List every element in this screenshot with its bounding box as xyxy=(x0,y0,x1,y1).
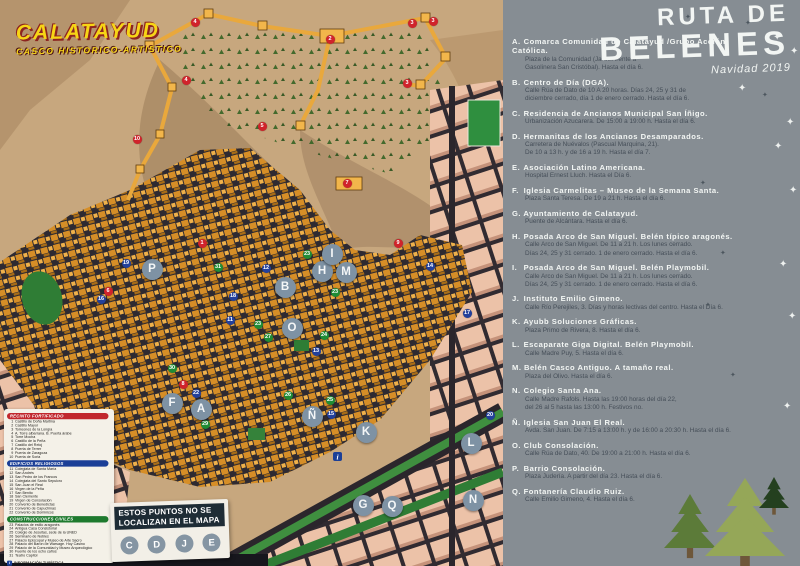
poi-entry: Q. Fontanería Claudio Ruiz.Calle Emilio … xyxy=(512,487,764,505)
map-number-marker: 5 xyxy=(258,122,267,131)
star-icon: ✦ xyxy=(738,84,746,94)
poi-entry-title: L. Escaparate Giga Digital. Belén Playmo… xyxy=(512,340,764,349)
poi-entry-letter: I. xyxy=(512,263,521,272)
poi-entry-letter: D. xyxy=(512,132,521,141)
star-icon: ✦ xyxy=(705,302,711,309)
route-title-line2: BELENES xyxy=(599,26,791,66)
map-letter-marker: G xyxy=(353,495,374,516)
poi-entry-letter: O. xyxy=(512,441,521,450)
star-icon: ✦ xyxy=(786,118,794,128)
map-number-marker: 7 xyxy=(343,179,352,188)
legend-footer: iINFORMACIÓN TURÍSTICA xyxy=(7,561,108,566)
map-number-marker: 30 xyxy=(168,364,177,373)
map-number-marker: 3 xyxy=(408,19,417,28)
map-number-marker: 3 xyxy=(429,17,438,26)
not-localized-text: ESTOS PUNTOS NO SE LOCALIZAN EN EL MAPA xyxy=(114,503,225,530)
poi-entry-letter: C. xyxy=(512,109,521,118)
poi-entry-title: H. Posada Arco de San Miguel. Belén típi… xyxy=(512,232,764,241)
poi-entry-letter: J. xyxy=(512,294,521,303)
poi-entry-detail: Días 24, 25 y 31 cerrado. 1 de enero cer… xyxy=(525,250,764,258)
map-number-marker: 20 xyxy=(486,411,495,420)
map-letter-marker: M xyxy=(336,262,357,283)
poi-entry: E. Asociación Latino Americana.Hospital … xyxy=(512,163,764,181)
star-icon: ✦ xyxy=(779,260,787,270)
map-number-marker: 25 xyxy=(326,396,335,405)
star-icon: ✦ xyxy=(762,92,768,99)
poi-entry-title: C. Residencia de Ancianos Municipal San … xyxy=(512,109,764,118)
poi-entry-detail: De 10 a 13 h. y de 16 a 19 h. Hasta el d… xyxy=(525,149,764,157)
legend-item: 10Puerta de Soria xyxy=(7,456,108,460)
legend-item-label: Convento de Dominicos xyxy=(15,511,54,515)
map-letter-marker: Ñ xyxy=(302,406,323,427)
map-number-marker: 15 xyxy=(327,410,336,419)
not-localized-letter: E xyxy=(202,533,221,552)
poi-entry-detail: Urbanización Azucarera. De 15:00 a 19:00… xyxy=(525,118,764,126)
poi-entry-letter: H. xyxy=(512,232,521,241)
map-number-marker: 4 xyxy=(182,76,191,85)
map-number-marker: 23 xyxy=(303,250,312,259)
poi-entry-detail: Puente de Alcántara. Hasta el día 6. xyxy=(525,218,764,226)
poi-entry-letter: K. xyxy=(512,317,521,326)
map-letter-marker: I xyxy=(322,244,343,265)
poi-entry: P. Barrio Consolación.Plaza Judería. A p… xyxy=(512,464,764,482)
sports-field xyxy=(468,100,500,146)
map-number-marker: 23 xyxy=(254,320,263,329)
poi-entry-title: P. Barrio Consolación. xyxy=(512,464,764,473)
legend-item: 22Convento de Dominicos xyxy=(7,511,108,515)
star-icon: ✦ xyxy=(783,402,791,412)
map-number-marker: 14 xyxy=(426,262,435,271)
poi-entry-detail: Calle Río Perejiles, 3. Días y horas lec… xyxy=(525,304,764,312)
poi-entry: F. Iglesia Carmelitas – Museo de la Sema… xyxy=(512,186,764,204)
map-letter-marker: F xyxy=(162,393,183,414)
poi-entry: M. Belén Casco Antiguo. A tamaño real.Pl… xyxy=(512,363,764,381)
not-localized-letters: CDJE xyxy=(115,533,226,555)
poi-entry: L. Escaparate Giga Digital. Belén Playmo… xyxy=(512,340,764,358)
poi-entry-detail: Carretera de Nuévalos (Pascual Marquina,… xyxy=(525,141,764,149)
poi-entry-title: M. Belén Casco Antiguo. A tamaño real. xyxy=(512,363,764,372)
poi-entry-detail: Calle Arco de San Miguel. De 11 a 21 h. … xyxy=(525,241,764,249)
poi-entry-title: I. Posada Arco de San Miguel. Belén Play… xyxy=(512,263,764,272)
map-number-marker: 9 xyxy=(394,239,403,248)
info-icon: i xyxy=(333,452,342,462)
map-number-marker: 27 xyxy=(264,333,273,342)
poi-entry-detail: Avda. San Juan. De 7:15 a 13:00 h. y de … xyxy=(525,427,764,435)
poi-entry-detail: Hospital Ernest Lluch. Hasta el Día 6. xyxy=(525,172,764,180)
legend-item-label: Puerta de Soria xyxy=(15,456,40,460)
map-letter-marker: L xyxy=(461,433,482,454)
map-number-marker: 18 xyxy=(229,292,238,301)
poi-entry: B. Centro de Día (DGA).Calle Rúa de Dato… xyxy=(512,78,764,104)
poi-entry-detail: Plaza Primo de Rivera, 8. Hasta el día 6… xyxy=(525,327,764,335)
map-number-marker: 22 xyxy=(192,389,201,398)
map-letter-marker: O xyxy=(282,318,303,339)
poi-entry: K. Ayubb Soluciones Gráficas.Plaza Primo… xyxy=(512,317,764,335)
info-icon: i xyxy=(7,561,12,566)
map-number-marker: 12 xyxy=(262,264,271,273)
map-number-marker: 8 xyxy=(179,380,188,389)
legend-section-title: EDIFICIOS RELIGIOSOS xyxy=(7,461,108,467)
poi-entry: I. Posada Arco de San Miguel. Belén Play… xyxy=(512,263,764,289)
poi-entry: J. Instituto Emilio Gimeno.Calle Río Per… xyxy=(512,294,764,312)
route-title-block: RUTA DE BELENES Navidad 2019 xyxy=(598,1,791,81)
star-icon: ✦ xyxy=(700,180,706,187)
poi-entry-title: J. Instituto Emilio Gimeno. xyxy=(512,294,764,303)
map-number-marker: 1 xyxy=(198,239,207,248)
map-letter-marker: A xyxy=(191,399,212,420)
poi-entry: H. Posada Arco de San Miguel. Belén típi… xyxy=(512,232,764,258)
star-icon: ✦ xyxy=(730,372,736,379)
map-number-marker: 3 xyxy=(403,79,412,88)
map-letter-marker: N xyxy=(463,490,484,511)
not-localized-letter: D xyxy=(147,535,166,554)
poi-entry-letter: P. xyxy=(512,464,521,473)
poi-entry-title: E. Asociación Latino Americana. xyxy=(512,163,764,172)
map-number-marker: 26 xyxy=(284,391,293,400)
poi-entry-title: G. Ayuntamiento de Calatayud. xyxy=(512,209,764,218)
legend-item-number: 31 xyxy=(7,555,13,559)
map-number-marker: 11 xyxy=(226,316,235,325)
star-icon: ✦ xyxy=(789,186,797,196)
legend-item: 31Teatro Capitol xyxy=(7,555,108,559)
poi-entry: G. Ayuntamiento de Calatayud.Puente de A… xyxy=(512,209,764,227)
star-icon: ✦ xyxy=(790,47,798,57)
map-letter-marker: K xyxy=(356,422,377,443)
poi-entry: Ñ. Iglesia San Juan El Real.Avda. San Ju… xyxy=(512,418,764,436)
route-panel: RUTA DE BELENES Navidad 2019 A. Comarca … xyxy=(503,0,800,566)
poi-entry: O. Club Consolación.Calle Rúa de Dato, 4… xyxy=(512,441,764,459)
poi-entry-title: K. Ayubb Soluciones Gráficas. xyxy=(512,317,764,326)
poi-entry-letter: B. xyxy=(512,78,521,87)
poi-entry-title: O. Club Consolación. xyxy=(512,441,764,450)
legend-item-number: 10 xyxy=(7,456,13,460)
poi-entry: D. Hermanitas de los Ancianos Desamparad… xyxy=(512,132,764,158)
poi-entry-detail: Calle Rúa de Dato de 10 A 20 horas. Días… xyxy=(525,87,764,95)
poi-entry-detail: del 26 al 5 hasta las 13:00 h. Festivos … xyxy=(525,404,764,412)
not-localized-letter: C xyxy=(120,536,139,555)
poi-entry-detail: Calle Rúa de Dato, 40. De 19:00 a 21:00 … xyxy=(525,450,764,458)
poi-entry-letter: M. xyxy=(512,363,521,372)
legend-section-title: RECINTO FORTIFICADO xyxy=(7,413,108,419)
map-legend: RECINTO FORTIFICADO1Castillo de Doña Mar… xyxy=(4,409,114,563)
map-number-marker: 4 xyxy=(191,18,200,27)
poi-entry-letter: Q. xyxy=(512,487,521,496)
map-letter-marker: P xyxy=(142,259,163,280)
map-letter-marker: B xyxy=(275,277,296,298)
legend-item-label: Teatro Capitol xyxy=(15,555,37,559)
poi-entry-title: D. Hermanitas de los Ancianos Desamparad… xyxy=(512,132,764,141)
star-icon: ✦ xyxy=(774,142,782,152)
map-number-marker: 2 xyxy=(326,35,335,44)
poi-entry-detail: Calle Madre Rafols. Hasta las 19:00 hora… xyxy=(525,396,764,404)
map-number-marker: 13 xyxy=(312,347,321,356)
map-number-marker: 6 xyxy=(104,287,113,296)
poi-entry-title: F. Iglesia Carmelitas – Museo de la Sema… xyxy=(512,186,764,195)
poi-entry-letter: F. xyxy=(512,186,521,195)
map-number-marker: 29 xyxy=(201,420,210,429)
legend-section-title: CONSTRUCCIONES CIVILES xyxy=(7,516,108,522)
poi-entry-detail: Plaza del Olivo. Hasta el día 6. xyxy=(525,373,764,381)
poi-entry-detail: Calle Arco de San Miguel. De 11 a 21 h. … xyxy=(525,273,764,281)
poi-entry-detail: Días 24, 25 y 31 cerrado. 1 de enero cer… xyxy=(525,281,764,289)
legend-footer-label: INFORMACIÓN TURÍSTICA xyxy=(14,561,64,565)
poi-list: A. Comarca Comunidad de Calatayud /Grupo… xyxy=(512,37,764,510)
poi-entry-detail: Plaza Santa Teresa. De 19 a 21 h. Hasta … xyxy=(525,195,764,203)
poi-entry: N. Colegio Santa Ana.Calle Madre Rafols.… xyxy=(512,386,764,412)
poi-entry-letter: A. xyxy=(512,37,521,46)
legend-item-number: 22 xyxy=(7,511,13,515)
poi-entry: C. Residencia de Ancianos Municipal San … xyxy=(512,109,764,127)
poi-entry-letter: N. xyxy=(512,386,521,395)
poi-entry-detail: diciembre cerrado, día 1 de enero cerrad… xyxy=(525,95,764,103)
star-icon: ✦ xyxy=(720,250,726,257)
poi-entry-letter: G. xyxy=(512,209,521,218)
poi-entry-letter: Ñ. xyxy=(512,418,521,427)
poi-entry-title: Ñ. Iglesia San Juan El Real. xyxy=(512,418,764,427)
map-number-marker: 17 xyxy=(463,309,472,318)
map-letter-marker: Q xyxy=(382,496,403,517)
poi-entry-letter: E. xyxy=(512,163,521,172)
not-localized-letter: J xyxy=(175,534,194,553)
not-localized-box: ESTOS PUNTOS NO SE LOCALIZAN EN EL MAPA … xyxy=(110,499,230,562)
brochure-page: i CALATAYUD CASCO HISTORICO-ARTISTICO AB… xyxy=(0,0,800,566)
map-number-marker: 19 xyxy=(122,259,131,268)
map-number-marker: 16 xyxy=(97,295,106,304)
map-number-marker: 31 xyxy=(214,263,223,272)
poi-entry-detail: Calle Madre Puy, 5. Hasta el día 6. xyxy=(525,350,764,358)
poi-entry-letter: L. xyxy=(512,340,521,349)
city-map: i CALATAYUD CASCO HISTORICO-ARTISTICO AB… xyxy=(0,0,503,566)
map-title: CALATAYUD xyxy=(16,19,183,46)
poi-entry-title: N. Colegio Santa Ana. xyxy=(512,386,764,395)
star-icon: ✦ xyxy=(788,312,796,322)
map-number-marker: 23 xyxy=(331,288,340,297)
poi-entry-detail: Plaza Judería. A partir del día 23. Hast… xyxy=(525,473,764,481)
map-number-marker: 10 xyxy=(133,135,142,144)
poi-entry-title: Q. Fontanería Claudio Ruiz. xyxy=(512,487,764,496)
map-title-block: CALATAYUD CASCO HISTORICO-ARTISTICO xyxy=(16,19,183,57)
poi-entry-detail: Calle Emilio Gimeno, 4. Hasta el día 6. xyxy=(525,496,764,504)
map-number-marker: 24 xyxy=(320,331,329,340)
